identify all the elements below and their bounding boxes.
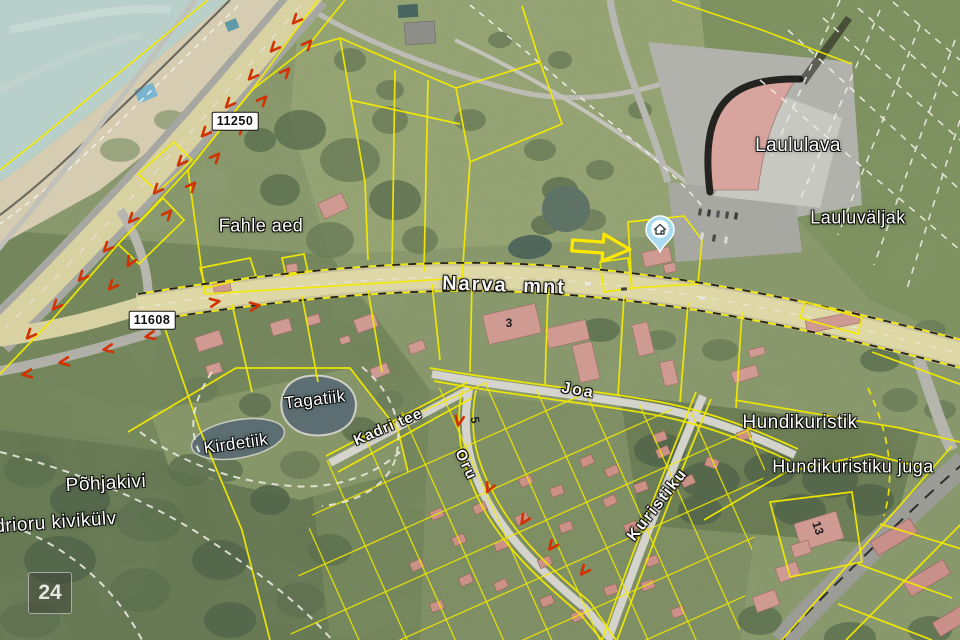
area-label-hundikuristik: Hundikuristik	[742, 412, 857, 434]
street-label-narva-mnt: Narva mnt	[442, 272, 567, 299]
location-marker[interactable]	[639, 202, 681, 254]
map-viewport[interactable]: Fahle aed Laululava Lauluväljak Tagatiik…	[0, 0, 960, 640]
map-tile-label: 24	[28, 572, 72, 614]
area-label-fahle-aed: Fahle aed	[219, 216, 304, 237]
area-label-hundikuristiku-juga: Hundikuristiku juga	[772, 457, 934, 478]
highlight-arrow-icon	[569, 228, 635, 268]
road-number-badge-11250: 11250	[212, 112, 259, 131]
area-label-lauluvaljak: Lauluväljak	[810, 208, 906, 229]
pin-body	[646, 216, 674, 252]
area-label-pohjakivi: Põhjakivi	[65, 471, 147, 497]
road-number-badge-11608: 11608	[129, 311, 176, 330]
building-number-3: 3	[506, 316, 513, 330]
area-label-laululava: Laululava	[755, 135, 841, 157]
